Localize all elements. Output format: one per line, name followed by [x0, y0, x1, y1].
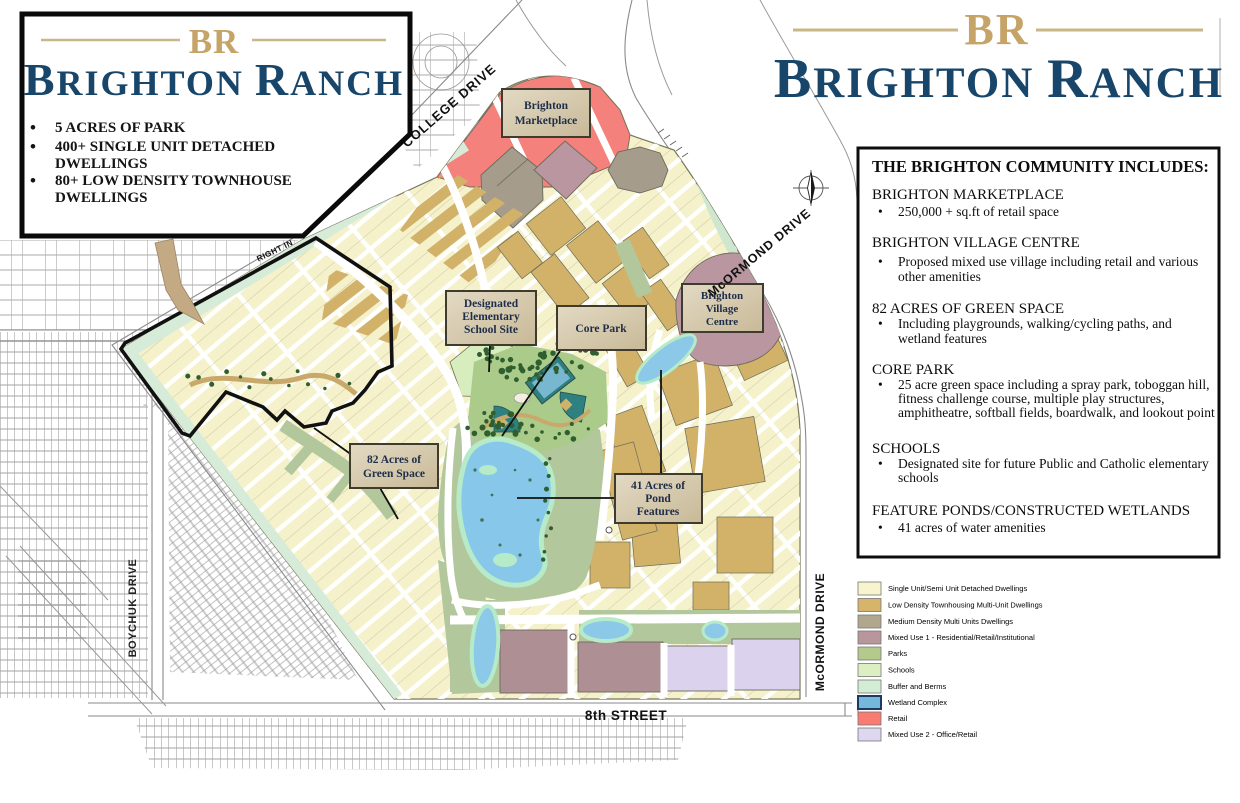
svg-text:•: •: [878, 316, 883, 331]
svg-text:SCHOOLS: SCHOOLS: [872, 441, 940, 457]
svg-text:Village: Village: [706, 303, 739, 315]
svg-text:82 Acres of: 82 Acres of: [367, 454, 421, 466]
svg-text:80+ LOW DENSITY TOWNHOUSE: 80+ LOW DENSITY TOWNHOUSE: [55, 173, 292, 189]
svg-text:25 acre green space including: 25 acre green space including a spray pa…: [898, 377, 1210, 392]
svg-text:CORE PARK: CORE PARK: [872, 362, 955, 378]
svg-text:82 ACRES OF GREEN SPACE: 82 ACRES OF GREEN SPACE: [872, 301, 1064, 317]
svg-text:Low Density Townhousing Multi-: Low Density Townhousing Multi-Unit Dwell…: [888, 601, 1043, 610]
svg-text:Mixed Use 1 - Residential/Reta: Mixed Use 1 - Residential/Retail/Institu…: [888, 633, 1035, 642]
svg-text:Marketplace: Marketplace: [515, 115, 578, 127]
svg-text:•: •: [878, 456, 883, 471]
svg-text:THE BRIGHTON COMMUNITY INCLUDE: THE BRIGHTON COMMUNITY INCLUDES:: [872, 157, 1209, 176]
svg-text:wetland features: wetland features: [898, 331, 987, 346]
svg-text:Features: Features: [637, 506, 680, 518]
svg-text:fitness challenge course, mult: fitness challenge course, multiple play …: [898, 391, 1165, 406]
svg-text:Centre: Centre: [706, 316, 738, 328]
svg-text:schools: schools: [898, 470, 939, 485]
svg-text:Mixed Use 2 - Office/Retail: Mixed Use 2 - Office/Retail: [888, 730, 977, 739]
svg-text:BR: BR: [964, 5, 1029, 54]
svg-text:Elementary: Elementary: [462, 311, 520, 323]
svg-text:McORMOND DRIVE: McORMOND DRIVE: [813, 573, 827, 691]
svg-text:8th STREET: 8th STREET: [585, 708, 668, 723]
svg-text:BR: BR: [189, 22, 240, 61]
svg-text:•: •: [30, 118, 36, 137]
svg-text:DWELLINGS: DWELLINGS: [55, 190, 148, 206]
svg-text:BRIGHTON VILLAGE CENTRE: BRIGHTON VILLAGE CENTRE: [872, 235, 1080, 251]
svg-text:•: •: [878, 377, 883, 392]
svg-text:Pond: Pond: [645, 493, 671, 505]
svg-text:Proposed mixed use village inc: Proposed mixed use village including ret…: [898, 254, 1198, 269]
svg-text:other amenities: other amenities: [898, 269, 981, 284]
svg-text:5 ACRES OF PARK: 5 ACRES OF PARK: [55, 120, 186, 136]
svg-text:•: •: [30, 171, 36, 190]
svg-text:Core Park: Core Park: [575, 323, 627, 335]
svg-text:BRIGHTON MARKETPLACE: BRIGHTON MARKETPLACE: [872, 187, 1064, 203]
svg-text:Designated: Designated: [464, 298, 519, 310]
svg-text:•: •: [878, 254, 883, 269]
svg-text:Brighton: Brighton: [524, 100, 569, 112]
svg-text:Green Space: Green Space: [363, 468, 425, 480]
svg-text:FEATURE PONDS/CONSTRUCTED WETL: FEATURE PONDS/CONSTRUCTED WETLANDS: [872, 503, 1190, 519]
svg-text:Schools: Schools: [888, 666, 915, 675]
svg-text:41 acres of water amenities: 41 acres of water amenities: [898, 520, 1046, 535]
svg-text:Single Unit/Semi Unit Detached: Single Unit/Semi Unit Detached Dwellings: [888, 584, 1027, 593]
svg-text:•: •: [878, 204, 883, 219]
svg-text:BOYCHUK DRIVE: BOYCHUK DRIVE: [127, 559, 139, 658]
svg-text:•: •: [878, 520, 883, 535]
svg-text:Retail: Retail: [888, 714, 908, 723]
svg-text:400+ SINGLE UNIT DETACHED: 400+ SINGLE UNIT DETACHED: [55, 139, 275, 155]
svg-text:41 Acres of: 41 Acres of: [631, 480, 685, 492]
svg-text:School Site: School Site: [464, 324, 518, 336]
svg-text:Medium Density Multi Units Dwe: Medium Density Multi Units Dwellings: [888, 617, 1013, 626]
svg-text:DWELLINGS: DWELLINGS: [55, 156, 148, 172]
svg-text:Including playgrounds, walking: Including playgrounds, walking/cycling p…: [898, 316, 1172, 331]
svg-text:Buffer and Berms: Buffer and Berms: [888, 682, 946, 691]
svg-text:Wetland Complex: Wetland Complex: [888, 698, 947, 707]
svg-text:Parks: Parks: [888, 649, 907, 658]
svg-text:•: •: [30, 137, 36, 156]
svg-text:250,000 + sq.ft of retail spac: 250,000 + sq.ft of retail space: [898, 204, 1059, 219]
svg-text:Designated site for future Pub: Designated site for future Public and Ca…: [898, 456, 1209, 471]
svg-text:amphitheatre, softball fields,: amphitheatre, softball fields, boardwalk…: [898, 405, 1215, 420]
